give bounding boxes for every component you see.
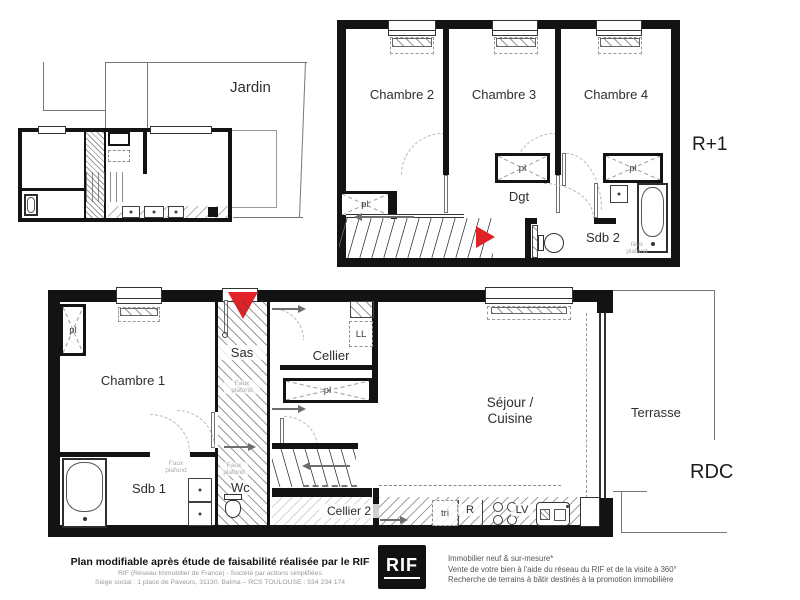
terrasse-label: Terrasse (631, 405, 681, 420)
rdc-stairs-direction-line (310, 465, 350, 467)
rdc-chambre1-door-gap (215, 412, 218, 448)
closet-label: pl (606, 156, 660, 180)
site-bathtub (24, 194, 38, 216)
r1-closet-chambre3: pl (495, 153, 550, 183)
rdc-counter-dash-edge (379, 485, 561, 486)
jardin-label: Jardin (230, 79, 271, 96)
footer-company-line: RIF (Réseau Immobilier de France) - Soci… (70, 570, 370, 577)
rdc-dishwasher-label: LV (511, 504, 533, 516)
rdc-headroom-dash-line (303, 485, 357, 487)
r1-door-leaf (444, 175, 448, 213)
rdc-wall-bottom (48, 525, 613, 537)
r1-radiator (496, 38, 536, 47)
r1-entry-arrow (476, 226, 495, 248)
r1-chambre4-label: Chambre 4 (568, 87, 664, 102)
footer-disclaimer: Plan modifiable après étude de faisabili… (70, 556, 370, 568)
site-boundary-line (299, 62, 306, 218)
rdc-radiator (491, 307, 567, 314)
site-kitchen-unit-dark (208, 207, 218, 217)
floor-plan-sheet: Jardin (0, 0, 800, 600)
site-boundary-line (43, 62, 44, 110)
site-wall (143, 132, 147, 174)
footer-service-line: Recherche de terrains à bâtir destinés à… (448, 575, 728, 586)
rdc-wc-faux-plafond-note: Fauxplafond (220, 462, 248, 476)
r1-toilet-bowl (544, 233, 564, 253)
rdc-end-cabinet (580, 497, 600, 527)
rdc-wall-corner (597, 290, 613, 313)
rdc-sdb1-label: Sdb 1 (132, 481, 166, 496)
footer-service-line: Immobilier neuf & sur-mesure* (448, 554, 728, 565)
closet-label: pl (498, 156, 547, 180)
rdc-cooktop-burner (493, 515, 503, 525)
rdc-cellier-label: Cellier (290, 348, 372, 363)
r1-chambre3-label: Chambre 3 (458, 87, 550, 102)
rdc-cellier2-label: Cellier 2 (319, 504, 379, 518)
rdc-door-direction-line (380, 519, 400, 521)
site-plan: Jardin (0, 0, 320, 250)
r1-wall (594, 218, 616, 224)
r1-window (388, 20, 436, 36)
rif-logo-text: RIF (384, 555, 420, 579)
rdc-wc-label: Wc (231, 480, 250, 495)
rdc-cooktop-burner (507, 515, 517, 525)
r1-wall (525, 218, 531, 258)
washing-machine-label: LL (350, 322, 372, 346)
rdc-tri-bin: tri (432, 500, 458, 526)
rdc-wall (280, 365, 372, 370)
site-window (150, 126, 212, 134)
r1-chambre2-label: Chambre 2 (356, 87, 448, 102)
rdc-window-sejour (485, 287, 573, 304)
r1-dgt-label: Dgt (499, 189, 539, 204)
closet-label: pl (286, 381, 369, 400)
rdc-wall (272, 488, 372, 497)
closet-label: pl (63, 307, 83, 353)
site-stairs (86, 172, 124, 202)
rdc-bay-window (599, 313, 601, 498)
rdc-counter-divider (482, 500, 483, 526)
rdc-door-direction-arrow (248, 443, 256, 451)
site-kitchen-unit (144, 206, 164, 218)
site-terrace (232, 130, 277, 208)
rdc-door-direction-arrow (298, 305, 306, 313)
r1-radiator (392, 38, 432, 47)
terrace-boundary (714, 290, 715, 440)
site-boundary-line (43, 110, 106, 111)
rdc-wall-left (48, 290, 60, 537)
rdc-cooktop-burner (493, 502, 503, 512)
rdc-door-direction-line (272, 308, 298, 310)
rdc-duct (350, 301, 374, 318)
rdc-wall (190, 452, 218, 457)
rdc-radiator (120, 308, 158, 316)
site-appliance (108, 150, 130, 162)
terrace-boundary (613, 290, 715, 291)
tri-label: tri (433, 501, 457, 525)
rdc-wall (267, 300, 270, 525)
r1-radiator (600, 38, 640, 47)
site-wall (22, 188, 84, 191)
r1-sdb2-label: Sdb 2 (586, 230, 620, 245)
terrace-boundary (613, 491, 647, 492)
rdc-bathtub (62, 458, 107, 528)
rdc-toilet-bowl (225, 500, 241, 518)
r1-plan: pl pl pl Chambr (337, 20, 680, 267)
rdc-washbasin (188, 502, 212, 526)
rdc-window-chambre1 (116, 287, 162, 304)
rdc-stairs-direction-arrow (302, 462, 310, 470)
r1-window (596, 20, 642, 36)
site-boundary-line (105, 62, 307, 63)
r1-level-label: R+1 (692, 134, 727, 156)
closet-label: pl (342, 194, 388, 215)
rdc-bay-window (604, 313, 606, 498)
r1-closet-chambre4: pl (603, 153, 663, 183)
rdc-closet-chambre1: pl (60, 304, 86, 356)
rdc-sejour-cuisine-label: Séjour /Cuisine (470, 395, 550, 427)
site-building (18, 128, 232, 222)
rdc-plan: Sas Fauxplafond pl Chambre 1 Fauxplafond… (48, 290, 615, 537)
rdc-ceiling-dash-line (586, 313, 587, 498)
footer-service-line: Vente de votre bien à l'aide du réseau d… (448, 565, 728, 576)
rdc-sas-label: Sas (218, 345, 266, 360)
rdc-door-direction-line (272, 408, 298, 410)
site-boundary-line (105, 62, 106, 130)
site-kitchen-unit (168, 206, 184, 218)
rdc-stairs (272, 449, 356, 487)
r1-door-swing (401, 133, 443, 175)
r1-wall (555, 29, 561, 175)
rdc-fridge-label: R (458, 504, 482, 516)
rdc-sas-faux-plafond-note: Fauxplafond (224, 380, 260, 394)
r1-door-leaf (594, 183, 598, 218)
site-boundary-line (233, 217, 303, 218)
terrace-boundary (621, 532, 727, 533)
rdc-door-direction-arrow (298, 405, 306, 413)
rdc-washbasin (188, 478, 212, 502)
site-kitchen-unit (122, 206, 140, 218)
rdc-sdb1-faux-plafond-note: Fauxplafond (160, 460, 192, 474)
rdc-chambre1-label: Chambre 1 (78, 373, 188, 388)
terrace-boundary (621, 491, 622, 533)
r1-stairs (339, 218, 493, 258)
rdc-level-label: RDC (690, 461, 733, 484)
footer-services: Immobilier neuf & sur-mesure* Vente de v… (448, 554, 728, 586)
site-boundary-line (147, 62, 148, 130)
rdc-wall (58, 452, 150, 457)
r1-stairs-direction-line (362, 216, 414, 218)
r1-wall (443, 29, 449, 175)
r1-faux-plafond-note: fauxplafond (622, 241, 652, 255)
site-window (38, 126, 66, 134)
rdc-closet-cellier: pl (283, 378, 372, 403)
r1-stairs-direction-arrow (354, 213, 362, 221)
site-closet (108, 132, 130, 146)
r1-window (492, 20, 538, 36)
r1-washbasin (610, 185, 628, 203)
rdc-door-direction-line (224, 446, 248, 448)
rdc-kitchen-sink (536, 502, 570, 526)
footer: Plan modifiable après étude de faisabili… (0, 545, 800, 600)
footer-address-line: Siège social : 1 place de Paveurs, 31130… (70, 579, 370, 586)
rdc-door-direction-arrow (400, 516, 408, 524)
rif-logo: RIF (378, 545, 426, 589)
rdc-washing-machine: LL (349, 321, 373, 347)
